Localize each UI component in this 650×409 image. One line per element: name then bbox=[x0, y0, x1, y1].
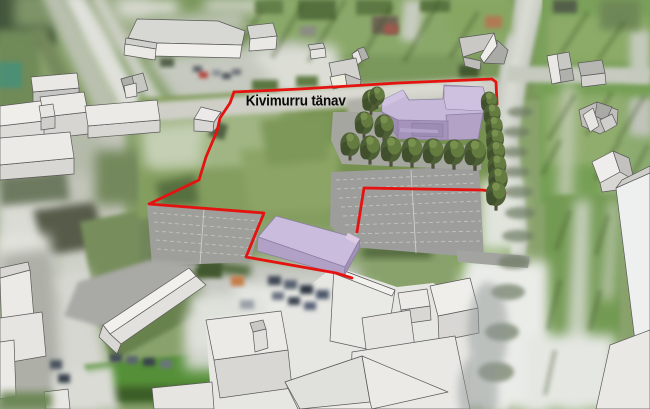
svg-text:Kivimurru tänav: Kivimurru tänav bbox=[246, 93, 346, 110]
